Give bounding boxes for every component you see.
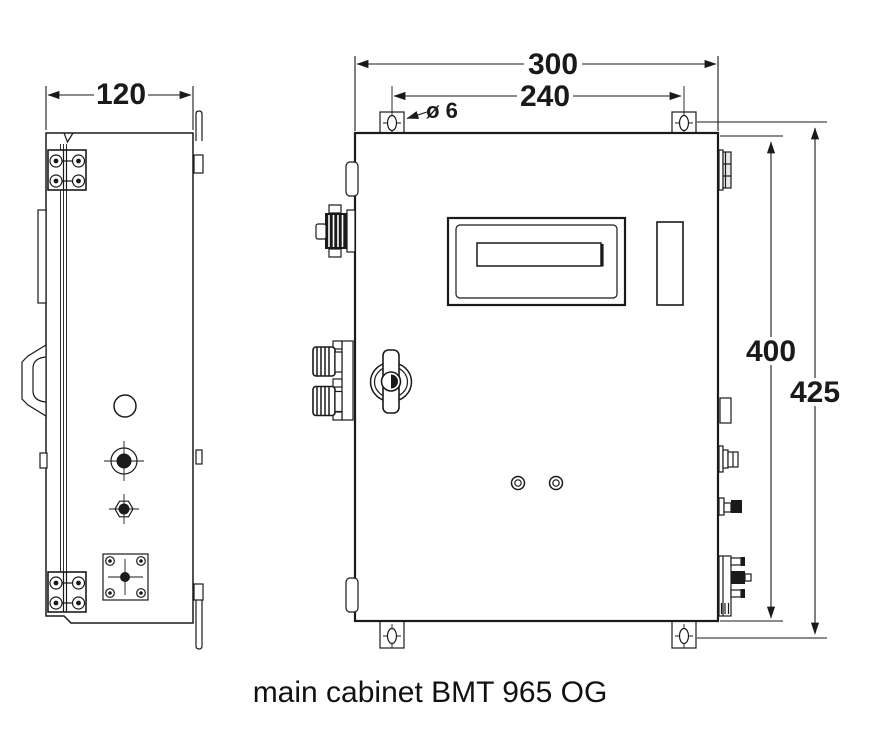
display-window xyxy=(477,243,601,266)
side-view: 120 xyxy=(22,78,203,649)
front-view: 300 240 ø 6 400 425 xyxy=(313,48,844,648)
dim-label-240: 240 xyxy=(520,80,570,113)
dim-label-400: 400 xyxy=(746,335,796,368)
mounting-tab-bottom-left xyxy=(380,621,404,648)
drawing-caption: main cabinet BMT 965 OG xyxy=(253,676,608,709)
dim-label-425: 425 xyxy=(790,376,840,409)
engineering-drawing-page: 120 xyxy=(0,0,879,755)
mounting-tab-top-right xyxy=(672,86,696,133)
right-edge-tab xyxy=(720,398,731,423)
connector-assembly xyxy=(719,556,751,616)
front-outline xyxy=(355,133,718,621)
wall-bracket-top xyxy=(194,111,203,173)
hinge-knuckle-top xyxy=(346,162,358,196)
side-hole-plain xyxy=(114,395,136,417)
side-bottom-plate xyxy=(103,554,148,600)
hinge-top xyxy=(48,150,86,190)
display-side-profile xyxy=(38,210,46,303)
dim-label-120: 120 xyxy=(96,78,146,111)
side-tab-mid xyxy=(196,450,202,464)
hinge-knuckle-right-top xyxy=(719,150,731,190)
door-lock xyxy=(371,350,412,413)
dim-label-300: 300 xyxy=(528,48,578,81)
side-fitting-small xyxy=(40,453,47,468)
connector-b xyxy=(719,498,742,515)
front-screw-left xyxy=(512,477,525,490)
hinge-knuckle-bottom xyxy=(346,578,358,612)
cable-gland-upper xyxy=(313,347,342,376)
display-panel xyxy=(448,218,625,305)
cable-gland-small xyxy=(316,205,355,257)
side-outline xyxy=(46,133,193,623)
hinge-bottom xyxy=(48,572,86,612)
cable-gland-lower xyxy=(313,387,342,416)
cable-glands xyxy=(313,341,353,420)
wall-bracket-bottom xyxy=(194,584,203,649)
label-strip xyxy=(657,222,683,305)
dimension-side-width: 120 xyxy=(46,78,193,130)
hole-diameter-callout: ø 6 xyxy=(407,98,458,123)
dim-label-dia6: ø 6 xyxy=(426,98,458,123)
mounting-tab-bottom-right xyxy=(672,621,696,648)
side-fitting-large xyxy=(104,441,144,481)
connector-a xyxy=(719,446,738,472)
lock-side-profile xyxy=(22,345,46,416)
front-screw-right xyxy=(550,477,563,490)
technical-drawing: 120 xyxy=(0,0,879,755)
side-fitting-hex xyxy=(109,494,139,524)
mounting-tab-top-left xyxy=(380,86,404,133)
door-frame-junction xyxy=(61,144,67,611)
